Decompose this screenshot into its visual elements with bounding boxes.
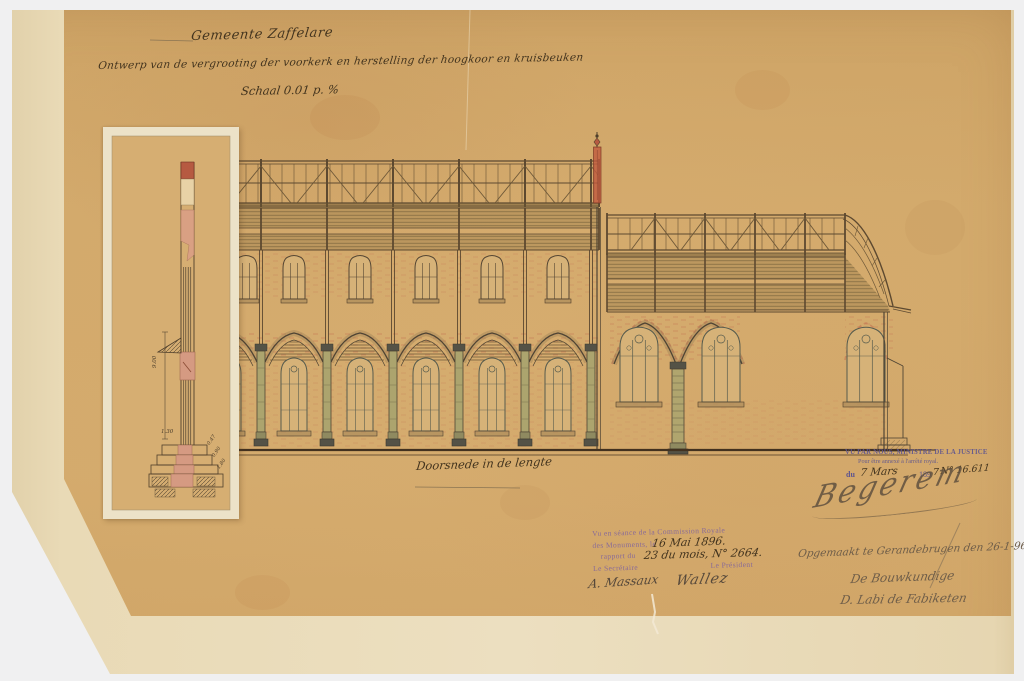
scanned-drawing-sheet: 9.00 1.30 0.47 0.90 1.80 Gemeente Zaffel… [0,0,1024,681]
colophon-fabric: D. Labi de Fabiketen [839,591,968,607]
nave-section [199,159,601,450]
fleche-spire [594,132,602,203]
inset-dim-height: 9.00 [152,356,158,368]
paper-creases [150,10,960,634]
inset-dim-width: 1.30 [161,429,173,435]
justice-stamp-line1: VU PAR NOUS, MINISTRE DE LA JUSTICE [845,449,1000,456]
choir-section [607,213,911,454]
title-scale: Schaal 0.01 p. % [240,82,339,98]
pier-section-drawing [103,127,239,519]
president-label: Le Président [710,558,753,571]
secretary-label: Le Secrétaire [593,561,638,574]
inset-detail-sheet [103,127,239,519]
ground-line [225,450,936,455]
president-signature: Wallez [674,570,730,589]
